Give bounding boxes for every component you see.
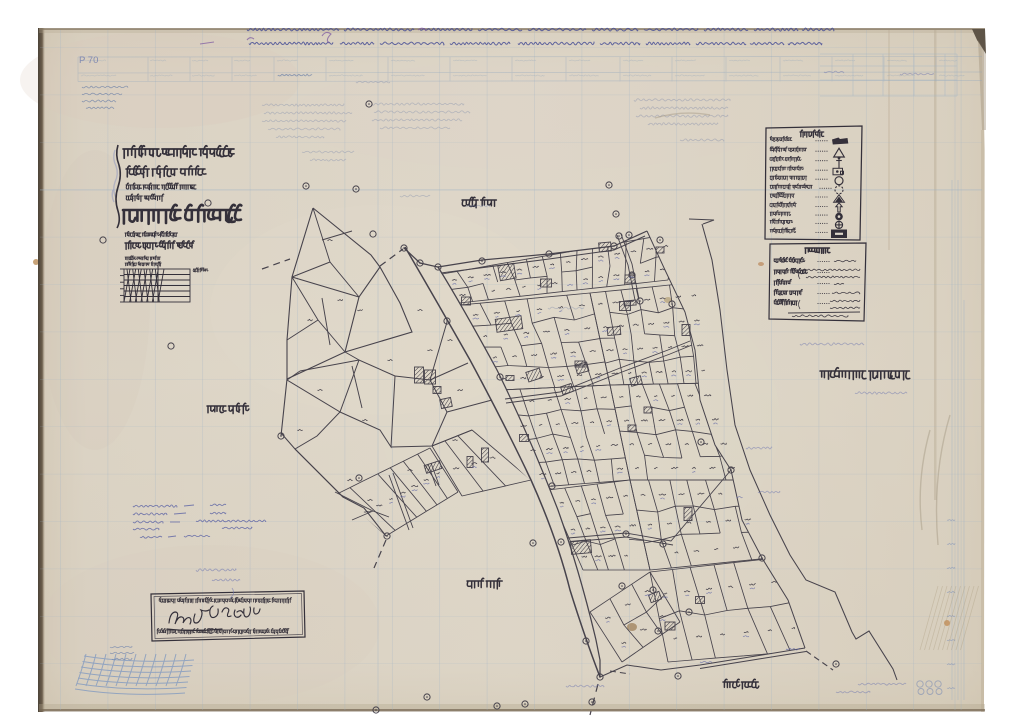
- svg-text:P 70: P 70: [79, 55, 98, 66]
